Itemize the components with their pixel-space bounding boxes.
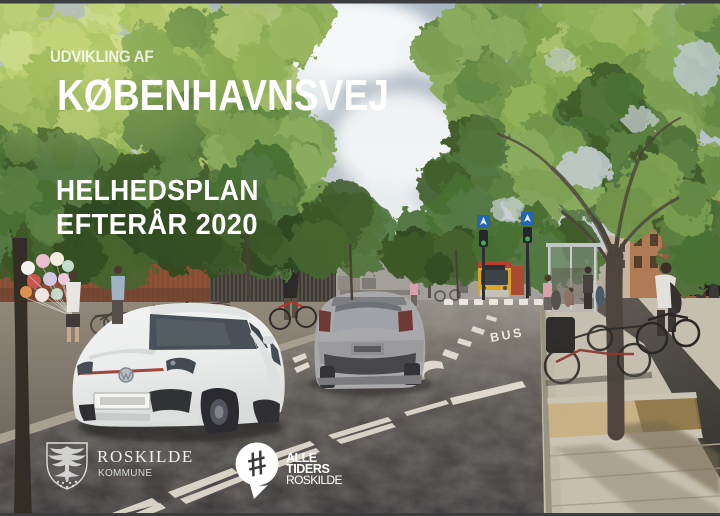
svg-text:KOMMUNE: KOMMUNE: [98, 468, 152, 479]
svg-text:ROSKILDE: ROSKILDE: [97, 447, 194, 466]
svg-text:ROSKILDE: ROSKILDE: [286, 473, 342, 487]
